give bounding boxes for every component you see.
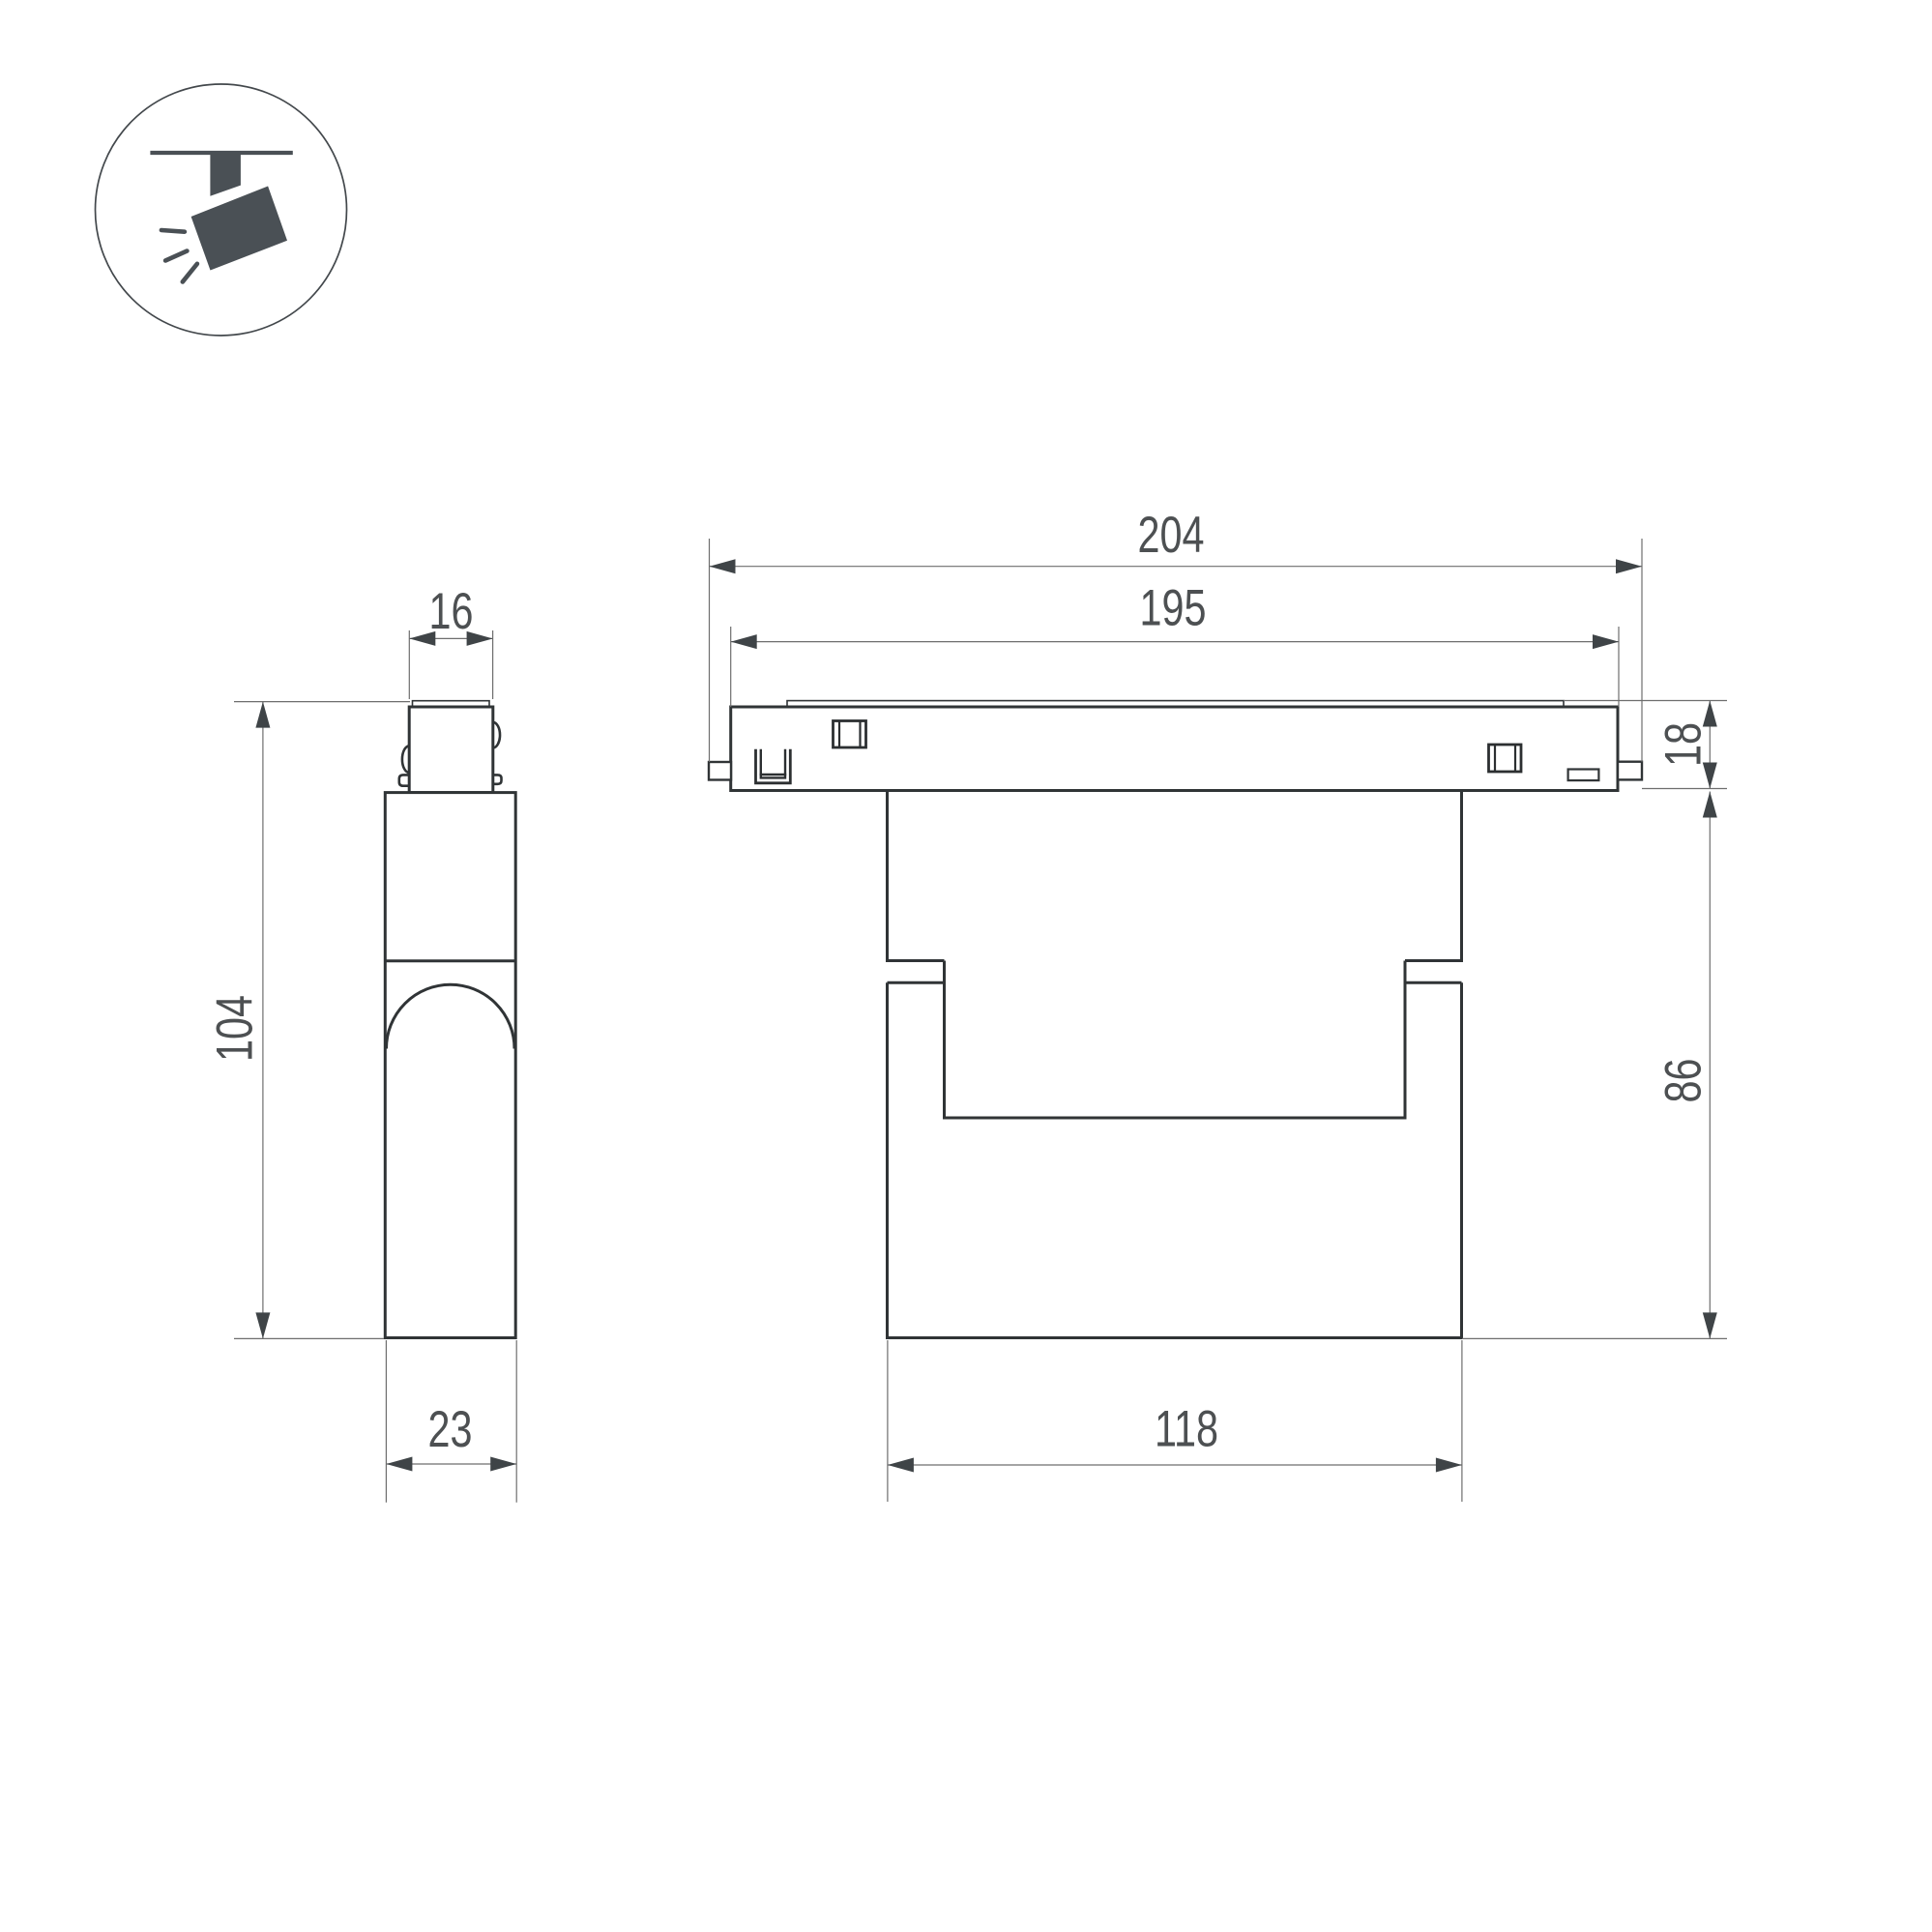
svg-text:16: 16 xyxy=(429,583,474,640)
svg-text:204: 204 xyxy=(1138,507,1205,564)
svg-text:18: 18 xyxy=(1655,722,1712,767)
svg-text:118: 118 xyxy=(1155,1401,1218,1458)
svg-text:104: 104 xyxy=(207,995,264,1062)
svg-text:86: 86 xyxy=(1655,1059,1712,1103)
svg-text:23: 23 xyxy=(428,1401,473,1458)
svg-text:195: 195 xyxy=(1140,580,1207,637)
